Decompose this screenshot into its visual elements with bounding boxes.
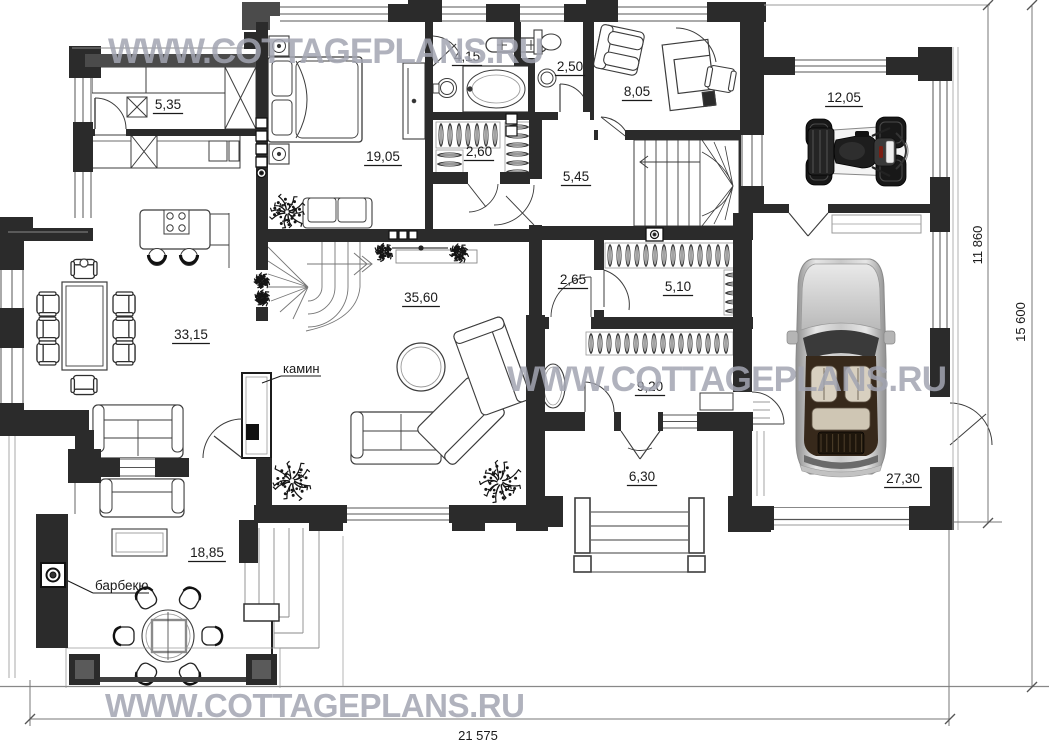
svg-text:2,65: 2,65 xyxy=(560,272,586,287)
svg-text:21 575: 21 575 xyxy=(458,728,498,743)
svg-text:WWW.COTTAGEPLANS.RU: WWW.COTTAGEPLANS.RU xyxy=(108,32,544,71)
svg-text:5,10: 5,10 xyxy=(665,279,691,294)
svg-text:камин: камин xyxy=(283,361,320,376)
svg-text:5,35: 5,35 xyxy=(155,97,181,112)
svg-text:2,60: 2,60 xyxy=(466,144,492,159)
svg-text:35,60: 35,60 xyxy=(404,290,438,305)
svg-text:15 600: 15 600 xyxy=(1013,302,1028,342)
svg-text:18,85: 18,85 xyxy=(190,545,224,560)
svg-text:8,05: 8,05 xyxy=(624,84,650,99)
svg-text:барбекю: барбекю xyxy=(95,578,149,593)
svg-text:19,05: 19,05 xyxy=(366,149,400,164)
svg-text:33,15: 33,15 xyxy=(174,327,208,342)
svg-text:5,45: 5,45 xyxy=(563,169,589,184)
svg-text:WWW.COTTAGEPLANS.RU: WWW.COTTAGEPLANS.RU xyxy=(105,687,525,724)
svg-text:27,30: 27,30 xyxy=(886,471,920,486)
svg-text:11 860: 11 860 xyxy=(970,226,985,265)
svg-text:12,05: 12,05 xyxy=(827,90,861,105)
svg-text:2,50: 2,50 xyxy=(557,59,583,74)
svg-text:6,30: 6,30 xyxy=(629,469,655,484)
svg-text:WWW.COTTAGEPLANS.RU: WWW.COTTAGEPLANS.RU xyxy=(507,360,947,399)
